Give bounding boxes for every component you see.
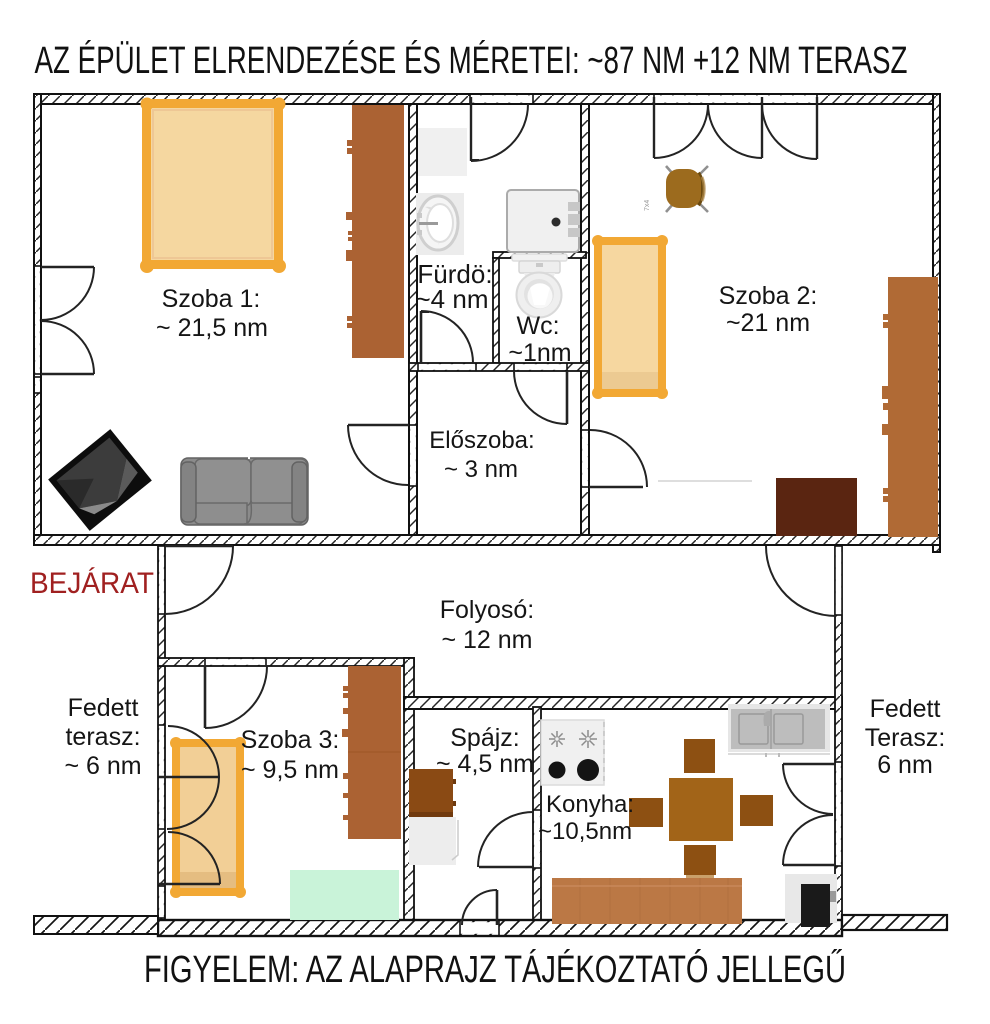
svg-text:~ 9,5 nm: ~ 9,5 nm [241, 756, 339, 784]
svg-text:~ 12 nm: ~ 12 nm [441, 626, 532, 654]
svg-text:~21 nm: ~21 nm [726, 309, 810, 337]
svg-text:Szoba 3:: Szoba 3: [241, 726, 340, 754]
svg-text:~1nm: ~1nm [508, 339, 571, 367]
svg-text:Wc:: Wc: [516, 312, 559, 340]
svg-text:Fedett: Fedett [68, 694, 139, 722]
svg-text:~10,5nm: ~10,5nm [538, 818, 632, 845]
svg-text:Folyosó:: Folyosó: [440, 596, 534, 624]
svg-text:~ 6 nm: ~ 6 nm [64, 752, 141, 780]
svg-text:Spájz:: Spájz: [450, 724, 519, 752]
svg-text:terasz:: terasz: [65, 723, 140, 751]
svg-text:~ 3 nm: ~ 3 nm [444, 456, 518, 483]
svg-text:Konyha:: Konyha: [546, 791, 634, 818]
svg-text:~4 nm: ~4 nm [416, 284, 489, 314]
svg-text:~ 21,5 nm: ~ 21,5 nm [156, 314, 268, 342]
svg-text:BEJÁRAT: BEJÁRAT [30, 567, 154, 600]
svg-text:Szoba 1:: Szoba 1: [162, 285, 261, 313]
svg-text:Szoba 2:: Szoba 2: [719, 282, 818, 310]
svg-text:7x4: 7x4 [644, 200, 651, 211]
svg-text:~ 4,5 nm: ~ 4,5 nm [436, 750, 534, 778]
svg-text:6 nm: 6 nm [877, 751, 933, 779]
svg-text:Terasz:: Terasz: [865, 724, 946, 752]
svg-text:Előszoba:: Előszoba: [429, 427, 534, 454]
svg-text:AZ ÉPÜLET ELRENDEZÉSE ÉS MÉRET: AZ ÉPÜLET ELRENDEZÉSE ÉS MÉRETEI: ~87 NM… [35, 39, 908, 82]
svg-text:Fedett: Fedett [870, 695, 941, 723]
svg-text:FIGYELEM: AZ ALAPRAJZ TÁJÉKOZT: FIGYELEM: AZ ALAPRAJZ TÁJÉKOZTATÓ JELLEG… [144, 948, 846, 991]
